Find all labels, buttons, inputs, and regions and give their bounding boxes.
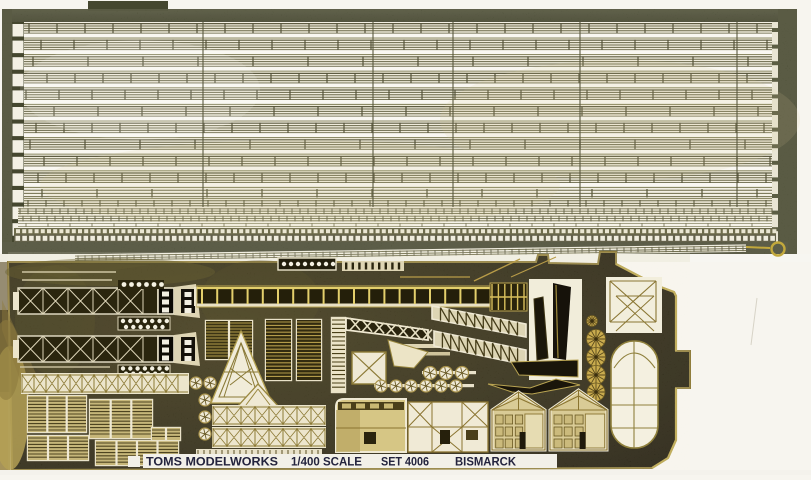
svg-text:TOMS MODELWORKS: TOMS MODELWORKS [146,455,278,469]
svg-text:BISMARCK: BISMARCK [455,455,516,469]
svg-text:SET 4006: SET 4006 [381,455,429,469]
svg-text:1/400 SCALE: 1/400 SCALE [291,455,362,469]
